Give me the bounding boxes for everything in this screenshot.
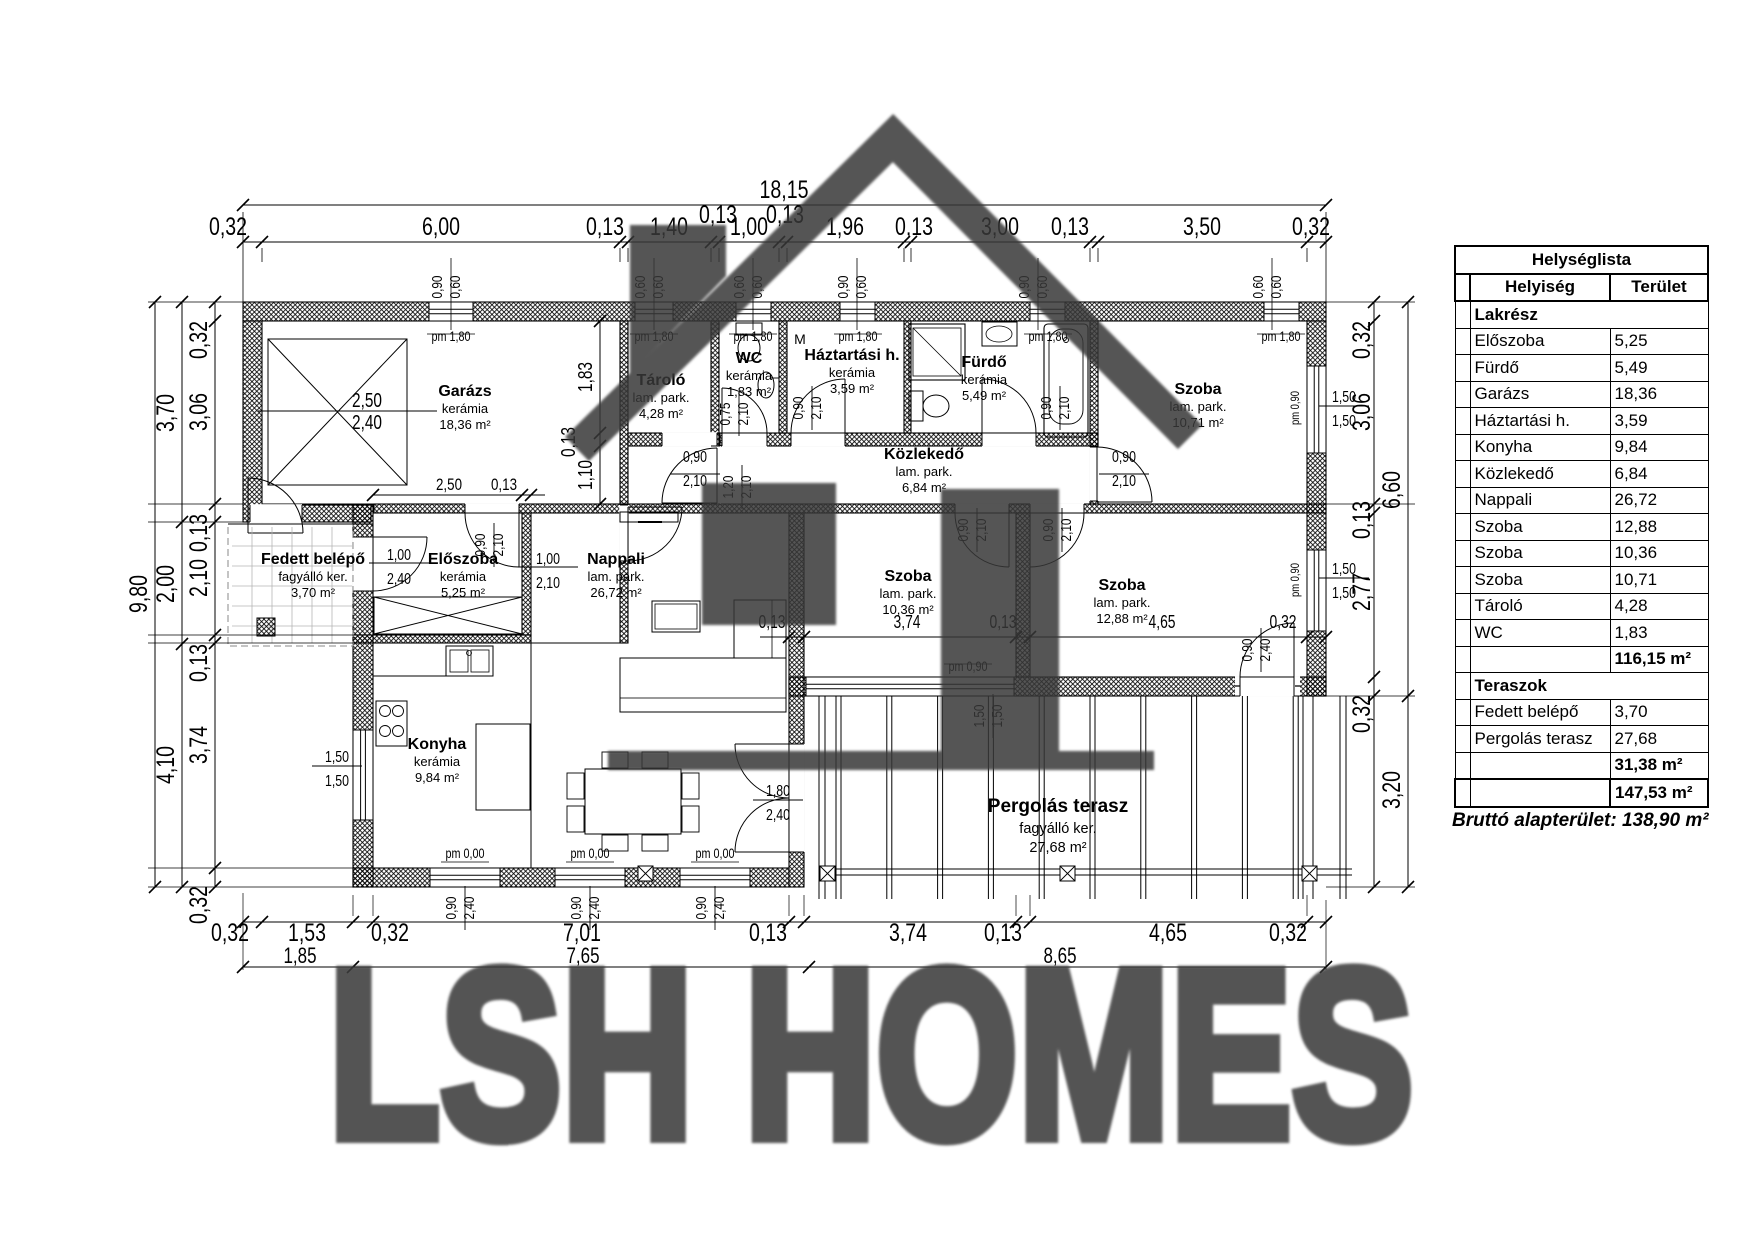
svg-text:2,50: 2,50 [352,390,382,412]
svg-text:4,65: 4,65 [1149,612,1176,632]
svg-text:0,90: 0,90 [1038,397,1055,420]
svg-text:2,10: 2,10 [1056,397,1073,420]
svg-text:0,60: 0,60 [1250,276,1267,299]
svg-text:0,90: 0,90 [443,897,460,920]
svg-text:4,10: 4,10 [152,746,180,784]
svg-text:2,40: 2,40 [461,897,478,920]
svg-text:2,10: 2,10 [735,403,752,426]
svg-text:1,50: 1,50 [1332,389,1356,406]
svg-text:0,90: 0,90 [835,276,852,299]
svg-text:0,32: 0,32 [209,213,247,241]
svg-text:Háztartási h.: Háztartási h. [804,347,899,364]
svg-text:0,32: 0,32 [1292,213,1330,241]
svg-text:5,25 m²: 5,25 m² [441,585,486,600]
svg-text:18,15: 18,15 [760,176,809,204]
svg-text:pm 0,90: pm 0,90 [1288,391,1302,425]
svg-text:3,59 m²: 3,59 m² [830,381,875,396]
svg-text:0,32: 0,32 [1348,321,1376,359]
svg-text:6,84 m²: 6,84 m² [902,480,947,495]
svg-text:2,40: 2,40 [387,571,411,588]
svg-text:1,80: 1,80 [766,783,790,800]
svg-text:2,40: 2,40 [1257,639,1274,662]
svg-text:Nappali: Nappali [587,551,645,568]
svg-text:1,50: 1,50 [1332,413,1356,430]
svg-text:3,70: 3,70 [152,394,180,432]
svg-text:0,90: 0,90 [568,897,585,920]
svg-text:M: M [794,331,806,347]
svg-text:3,50: 3,50 [1183,213,1221,241]
svg-text:0,60: 0,60 [853,276,870,299]
svg-text:3,74: 3,74 [185,726,213,764]
svg-text:0,32: 0,32 [1270,612,1297,632]
svg-text:0,13: 0,13 [699,201,737,229]
svg-text:2,10: 2,10 [1058,519,1075,542]
svg-text:10,36 m²: 10,36 m² [882,602,934,617]
svg-text:2,40: 2,40 [586,897,603,920]
svg-text:0,13: 0,13 [1348,501,1376,539]
svg-text:0,90: 0,90 [790,397,807,420]
svg-text:fagyálló ker.: fagyálló ker. [278,569,347,584]
svg-text:Közlekedő: Közlekedő [884,446,964,463]
svg-text:0,13: 0,13 [1051,213,1089,241]
svg-text:2,10: 2,10 [536,575,560,592]
svg-text:12,88 m²: 12,88 m² [1096,611,1148,626]
svg-text:kerámia: kerámia [414,754,461,769]
svg-text:pm 1,80: pm 1,80 [1262,328,1301,344]
svg-text:18,36 m²: 18,36 m² [439,417,491,432]
svg-text:0,90: 0,90 [683,449,707,466]
svg-text:Szoba: Szoba [1098,577,1145,594]
svg-text:1,00: 1,00 [387,547,411,564]
svg-text:pm 0,00: pm 0,00 [571,845,610,861]
svg-text:6,00: 6,00 [422,213,460,241]
svg-text:1,50: 1,50 [1332,561,1356,578]
svg-text:0,13: 0,13 [895,213,933,241]
svg-text:0,13: 0,13 [185,644,213,682]
svg-text:2,40: 2,40 [766,807,790,824]
svg-text:0,90: 0,90 [1239,639,1256,662]
svg-text:0,75: 0,75 [717,403,734,426]
svg-text:lam. park.: lam. park. [587,569,644,584]
svg-text:0,32: 0,32 [185,886,213,924]
svg-text:27,68 m²: 27,68 m² [1029,840,1086,856]
svg-text:1,83 m²: 1,83 m² [727,384,772,399]
svg-text:2,40: 2,40 [711,897,728,920]
svg-text:kerámia: kerámia [442,401,489,416]
svg-text:1,83: 1,83 [575,362,597,392]
svg-text:1,00: 1,00 [536,551,560,568]
svg-text:0,32: 0,32 [185,321,213,359]
svg-text:26,72 m²: 26,72 m² [590,585,642,600]
svg-text:Garázs: Garázs [438,383,491,400]
svg-text:2,50: 2,50 [436,475,462,494]
svg-text:3,70 m²: 3,70 m² [291,585,336,600]
svg-text:9,84 m²: 9,84 m² [415,770,460,785]
svg-text:0,90: 0,90 [429,276,446,299]
svg-text:0,13: 0,13 [185,514,213,552]
svg-text:9,80: 9,80 [125,575,153,613]
svg-text:6,60: 6,60 [1378,471,1406,509]
svg-text:fagyálló ker.: fagyálló ker. [1019,821,1096,837]
svg-text:kerámia: kerámia [440,569,487,584]
svg-text:3,06: 3,06 [185,393,213,431]
svg-text:0,60: 0,60 [1268,276,1285,299]
svg-text:lam. park.: lam. park. [1093,595,1150,610]
svg-text:Fürdő: Fürdő [961,354,1007,371]
svg-text:Szoba: Szoba [1174,381,1221,398]
svg-text:0,90: 0,90 [1112,449,1136,466]
svg-text:pm 0,00: pm 0,00 [696,845,735,861]
svg-text:pm 0,00: pm 0,00 [446,845,485,861]
svg-text:3,20: 3,20 [1378,771,1406,809]
svg-text:pm 0,90: pm 0,90 [1288,563,1302,597]
svg-text:2,40: 2,40 [352,412,382,434]
svg-text:2,10: 2,10 [808,397,825,420]
svg-text:pm 1,80: pm 1,80 [734,328,773,344]
svg-text:1,50: 1,50 [325,773,349,790]
svg-text:Előszoba: Előszoba [428,551,498,568]
svg-text:kerámia: kerámia [726,368,773,383]
svg-text:0,90: 0,90 [693,897,710,920]
svg-text:0,32: 0,32 [1348,695,1376,733]
svg-text:Fedett belépő: Fedett belépő [261,551,365,568]
svg-text:Konyha: Konyha [408,736,467,753]
svg-text:lam. park.: lam. park. [879,586,936,601]
svg-text:Szoba: Szoba [884,568,931,585]
svg-text:4,28 m²: 4,28 m² [639,406,684,421]
svg-text:pm 1,80: pm 1,80 [432,328,471,344]
svg-text:LSH HOMES: LSH HOMES [329,920,1414,1188]
svg-text:1,85: 1,85 [284,943,317,968]
svg-text:0,60: 0,60 [447,276,464,299]
svg-text:kerámia: kerámia [829,365,876,380]
svg-text:pm 1,80: pm 1,80 [839,328,878,344]
svg-text:1,50: 1,50 [325,749,349,766]
svg-text:0,13: 0,13 [586,213,624,241]
svg-text:2,10: 2,10 [185,559,213,597]
svg-text:1,50: 1,50 [1332,585,1356,602]
svg-text:2,00: 2,00 [152,565,180,603]
svg-text:5,49 m²: 5,49 m² [962,388,1007,403]
svg-text:0,13: 0,13 [491,475,517,494]
svg-text:1,10: 1,10 [575,460,597,490]
svg-text:2,10: 2,10 [1112,473,1136,490]
svg-text:lam. park.: lam. park. [895,464,952,479]
svg-text:Pergolás terasz: Pergolás terasz [988,796,1128,817]
svg-text:WC: WC [736,350,763,367]
svg-text:kerámia: kerámia [961,372,1008,387]
